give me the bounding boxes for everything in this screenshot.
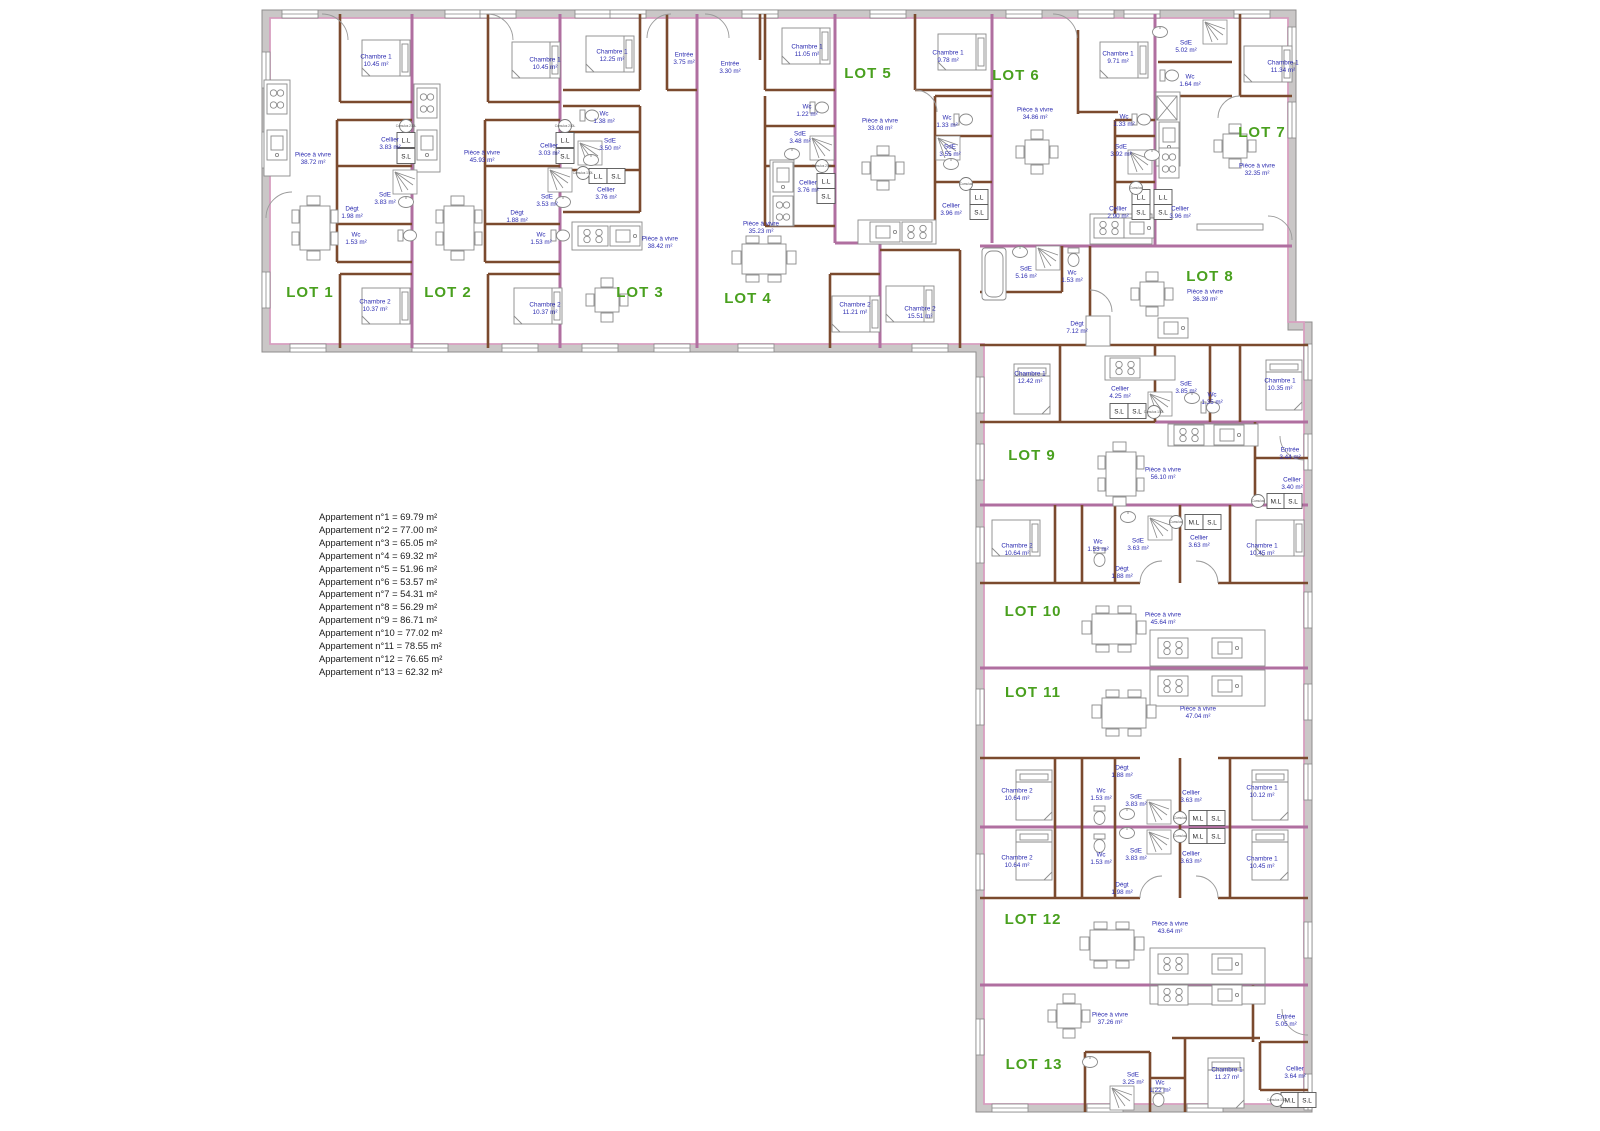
floor-plan: L.LS.LL.LS.LL.LS.LL.LS.LL.LS.LL.LS.LL.LS… (0, 0, 1600, 1131)
room-label: Dégt1.88 m² (506, 210, 527, 225)
room-label: Chambre 210.64 m² (1001, 855, 1033, 870)
room-label: Pièce à vivre34.86 m² (1017, 107, 1054, 122)
room-label: Entrée3.75 m² (673, 52, 694, 67)
legend-item: Appartement n°2 = 77.00 m² (319, 524, 442, 537)
room-label: Pièce à vivre36.39 m² (1187, 289, 1224, 304)
room-label: Chambre 112.25 m² (596, 49, 628, 64)
legend-item: Appartement n°7 = 54.31 m² (319, 588, 442, 601)
lot-label-lot-8: LOT 8 (1186, 268, 1234, 285)
room-label: Cellier3.76 m² (595, 187, 616, 202)
room-label: Pièce à vivre45.93 m² (464, 150, 501, 165)
utility-box-label: S.L (1114, 408, 1124, 415)
room-label: Cellier3.63 m² (1188, 535, 1209, 550)
cumulus-label: Cumulus 200L (555, 124, 576, 128)
utility-box-label: M.L (1189, 519, 1200, 526)
cumulus-label: Cumulus 200L (812, 164, 833, 168)
room-label: SdE3.50 m² (599, 138, 620, 153)
lot-label-lot-10: LOT 10 (1005, 603, 1062, 620)
room-label: Pièce à vivre35.23 m² (743, 221, 780, 236)
legend-list: Appartement n°1 = 69.79 m²Appartement n°… (319, 511, 442, 679)
floor-plan-svg: L.LS.LL.LS.LL.LS.LL.LS.LL.LS.LL.LS.LL.LS… (0, 0, 1600, 1131)
utility-box-label: S.L (560, 153, 570, 160)
room-label: Pièce à vivre38.72 m² (295, 152, 332, 167)
utility-box-label: S.L (1132, 408, 1142, 415)
room-label: Entrée3.44 m² (1279, 447, 1300, 462)
room-label: SdE3.83 m² (1125, 794, 1146, 809)
room-label: Cellier3.03 m² (538, 143, 559, 158)
utility-box-label: S.L (1288, 498, 1298, 505)
legend-item: Appartement n°12 = 76.65 m² (319, 653, 442, 666)
room-label: Chambre 210.64 m² (1001, 543, 1033, 558)
utility-box-label: S.L (821, 193, 831, 200)
room-label: SdE3.25 m² (1122, 1072, 1143, 1087)
room-label: Dégt1.98 m² (1111, 882, 1132, 897)
legend-item: Appartement n°13 = 62.32 m² (319, 666, 442, 679)
legend-areas: Appartement n°1 = 69.79 m²Appartement n°… (319, 511, 442, 679)
room-label: Chambre 112.42 m² (1014, 371, 1046, 386)
room-label: Cellier3.83 m² (379, 137, 400, 152)
room-label: Wc1.53 m² (1090, 852, 1111, 867)
room-label: Pièce à vivre47.04 m² (1180, 706, 1217, 721)
utility-box-label: L.L (1159, 194, 1168, 201)
utility-box-label: S.L (1211, 833, 1221, 840)
room-label: SdE3.83 m² (1125, 848, 1146, 863)
utility-box-label: S.L (1158, 209, 1168, 216)
low-wall (1197, 224, 1263, 230)
room-label: Dégt1.98 m² (341, 206, 362, 221)
lot-label-lot-11: LOT 11 (1005, 684, 1061, 701)
utility-box-label: S.L (1136, 209, 1146, 216)
lot-label-lot-13: LOT 13 (1006, 1056, 1063, 1073)
room-label: Cellier3.63 m² (1180, 851, 1201, 866)
utility-box-label: S.L (1207, 519, 1217, 526)
cumulus-label: Cumulus (1252, 499, 1265, 503)
utility-box-label: S.L (1211, 815, 1221, 822)
room-label: Chambre 210.37 m² (529, 302, 561, 317)
room-label: Pièce à vivre43.64 m² (1152, 921, 1189, 936)
cumulus-label: Cumulus 200L (396, 124, 417, 128)
lot-label-lot-6: LOT 6 (992, 67, 1040, 84)
lot-label-lot-4: LOT 4 (724, 290, 772, 307)
legend-item: Appartement n°4 = 69.32 m² (319, 550, 442, 563)
room-label: Chambre 210.64 m² (1001, 788, 1033, 803)
room-label: Cellier2.90 m² (1107, 206, 1128, 221)
utility-box-label: S.L (401, 153, 411, 160)
room-label: Cellier3.63 m² (1180, 790, 1201, 805)
utility-box-label: S.L (974, 209, 984, 216)
room-label: Entrée5.05 m² (1275, 1014, 1296, 1029)
utility-box-label: L.L (594, 173, 603, 180)
room-label: SdE3.83 m² (374, 192, 395, 207)
utility-box-label: L.L (1137, 194, 1146, 201)
room-label: Wc1.35 m² (1201, 392, 1222, 407)
room-label: Wc1.53 m² (1061, 270, 1082, 285)
room-label: Chambre 211.21 m² (839, 302, 871, 317)
room-label: Pièce à vivre32.35 m² (1239, 163, 1276, 178)
cumulus-label: Cumulus (960, 182, 973, 186)
room-label: Wc1.53 m² (1087, 539, 1108, 554)
room-label: Wc1.53 m² (1090, 788, 1111, 803)
room-label: Pièce à vivre38.42 m² (642, 236, 679, 251)
lot-label-lot-2: LOT 2 (424, 284, 472, 301)
room-label: Chambre 110.12 m² (1246, 785, 1278, 800)
legend-item: Appartement n°6 = 53.57 m² (319, 576, 442, 589)
legend-item: Appartement n°10 = 77.02 m² (319, 627, 442, 640)
room-label: Cellier3.40 m² (1281, 477, 1302, 492)
room-label: Chambre 215.51 m² (904, 306, 936, 321)
utility-box-label: L.L (402, 137, 411, 144)
room-label: SdE3.85 m² (1175, 381, 1196, 396)
utility-box-label: L.L (561, 137, 570, 144)
room-label: Chambre 110.45 m² (1246, 856, 1278, 871)
lot-label-lot-7: LOT 7 (1238, 124, 1286, 141)
room-label: Dégt1.88 m² (1111, 566, 1132, 581)
room-label: Cellier3.64 m² (1284, 1066, 1305, 1081)
room-label: SdE3.53 m² (536, 194, 557, 209)
room-label: SdE3.92 m² (1110, 144, 1131, 159)
lot-label-lot-9: LOT 9 (1008, 447, 1056, 464)
lot-label-lot-3: LOT 3 (616, 284, 664, 301)
room-label: Wc1.53 m² (345, 232, 366, 247)
lot-label-lot-5: LOT 5 (844, 65, 892, 82)
room-label: Pièce à vivre56.10 m² (1145, 467, 1182, 482)
room-label: Wc1.33 m² (1113, 114, 1134, 129)
room-label: SdE5.16 m² (1015, 266, 1036, 281)
cumulus-label: Cumulus (1174, 816, 1187, 820)
room-label: Chambre 111.34 m² (1267, 60, 1299, 75)
room-label: Wc1.22 m² (1149, 1080, 1170, 1095)
room-label: Wc1.64 m² (1179, 74, 1200, 89)
cumulus-label: Cumulus 150L (1267, 1098, 1288, 1102)
utility-box-label: M.L (1193, 833, 1204, 840)
utility-box-label: M.L (1193, 815, 1204, 822)
room-label: Cellier3.96 m² (1169, 206, 1190, 221)
legend-item: Appartement n°8 = 56.29 m² (319, 601, 442, 614)
room-label: Chambre 110.45 m² (1246, 543, 1278, 558)
legend-item: Appartement n°5 = 51.96 m² (319, 563, 442, 576)
room-label: Chambre 110.45 m² (360, 54, 392, 69)
room-label: Entrée3.30 m² (719, 61, 740, 76)
legend-item: Appartement n°11 = 78.55 m² (319, 640, 442, 653)
room-label: Pièce à vivre33.08 m² (862, 118, 899, 133)
legend-item: Appartement n°3 = 65.05 m² (319, 537, 442, 550)
lot-label-lot-12: LOT 12 (1005, 911, 1062, 928)
utility-box-label: S.L (1302, 1097, 1312, 1104)
room-label: Cellier3.96 m² (940, 203, 961, 218)
room-label: SdE5.02 m² (1175, 40, 1196, 55)
room-label: Chambre 110.35 m² (1264, 378, 1296, 393)
room-label: SdE3.63 m² (1127, 538, 1148, 553)
cumulus-label: Cumulus 150L (1144, 410, 1165, 414)
cumulus-label: Cumulus 150L (573, 171, 594, 175)
room-label: SdE3.48 m² (789, 131, 810, 146)
room-label: Wc1.53 m² (530, 232, 551, 247)
room-label: Pièce à vivre45.64 m² (1145, 612, 1182, 627)
utility-box-label: L.L (975, 194, 984, 201)
room-label: Chambre 111.27 m² (1211, 1067, 1243, 1082)
legend-item: Appartement n°9 = 86.71 m² (319, 614, 442, 627)
room-label: Chambre 210.37 m² (359, 299, 391, 314)
utility-box-label: M.L (1271, 498, 1282, 505)
utility-box-label: L.L (822, 178, 831, 185)
cumulus-label: Cumulus (1170, 520, 1183, 524)
room-label: Dégt7.12 m² (1066, 321, 1087, 336)
room-label: Chambre 110.45 m² (529, 57, 561, 72)
room-label: Cellier4.25 m² (1109, 386, 1130, 401)
room-label: Cellier3.76 m² (797, 180, 818, 195)
lot-label-lot-1: LOT 1 (286, 284, 334, 301)
cumulus-label: Cumulus (1130, 186, 1143, 190)
cumulus-label: Cumulus (1174, 834, 1187, 838)
room-label: Chambre 111.05 m² (791, 44, 823, 59)
room-label: Dégt1.88 m² (1111, 765, 1132, 780)
room-label: Pièce à vivre37.26 m² (1092, 1012, 1129, 1027)
utility-box-label: S.L (611, 173, 621, 180)
legend-item: Appartement n°1 = 69.79 m² (319, 511, 442, 524)
